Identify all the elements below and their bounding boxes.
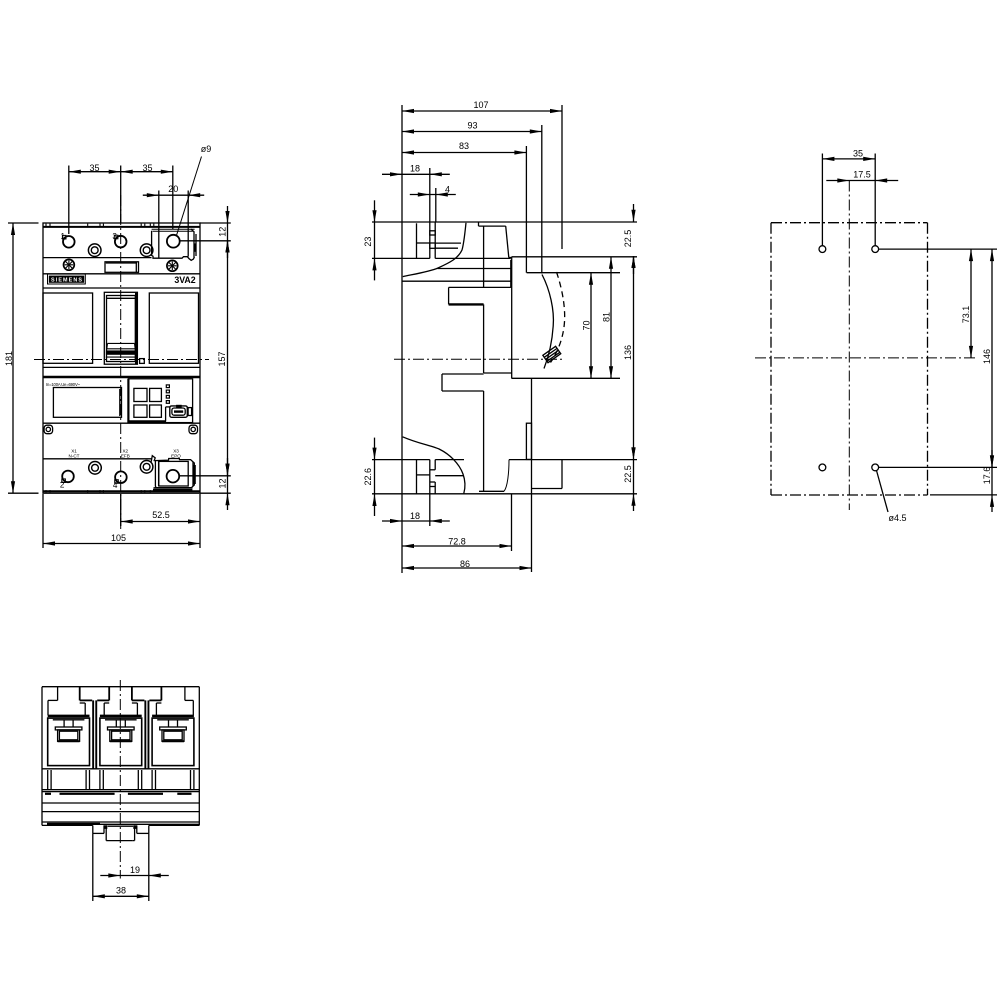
svg-text:81: 81	[602, 312, 612, 322]
svg-text:ø9: ø9	[201, 144, 212, 154]
svg-text:107: 107	[473, 100, 488, 110]
svg-text:35: 35	[89, 163, 99, 173]
svg-text:18: 18	[410, 164, 420, 174]
svg-text:ø4.5: ø4.5	[888, 513, 906, 523]
svg-text:86: 86	[460, 559, 470, 569]
svg-text:38: 38	[116, 886, 126, 896]
svg-text:19: 19	[130, 865, 140, 875]
svg-text:105: 105	[111, 533, 126, 543]
svg-text:EPO: EPO	[171, 453, 181, 458]
svg-text:52.5: 52.5	[152, 510, 170, 520]
svg-text:22.5: 22.5	[623, 465, 633, 483]
svg-text:In=100A Ue=690V~: In=100A Ue=690V~	[46, 382, 81, 387]
svg-text:20: 20	[168, 184, 178, 194]
svg-text:136: 136	[623, 345, 633, 360]
svg-text:73.1: 73.1	[961, 306, 971, 324]
svg-text:N-CT: N-CT	[69, 453, 80, 458]
svg-text:35: 35	[853, 148, 863, 158]
svg-text:EFB: EFB	[121, 453, 130, 458]
svg-text:83: 83	[459, 141, 469, 151]
svg-text:35: 35	[142, 163, 152, 173]
svg-text:23: 23	[363, 237, 373, 247]
svg-text:72.8: 72.8	[448, 537, 466, 547]
svg-text:17.5: 17.5	[853, 169, 871, 179]
svg-text:SIEMENS: SIEMENS	[51, 277, 82, 283]
svg-text:181: 181	[4, 351, 14, 366]
svg-text:1: 1	[61, 232, 66, 241]
svg-text:22.5: 22.5	[623, 230, 633, 248]
svg-text:12: 12	[218, 227, 228, 237]
svg-text:4: 4	[113, 481, 118, 490]
svg-text:4: 4	[445, 185, 450, 195]
svg-text:3VA2: 3VA2	[174, 275, 195, 285]
svg-text:157: 157	[217, 351, 227, 366]
svg-text:18: 18	[410, 511, 420, 521]
svg-text:146: 146	[982, 349, 992, 364]
svg-text:2: 2	[60, 480, 65, 489]
svg-text:3: 3	[112, 232, 117, 241]
svg-text:22.6: 22.6	[363, 468, 373, 486]
svg-text:93: 93	[467, 120, 477, 130]
svg-text:70: 70	[582, 320, 592, 330]
svg-text:12: 12	[218, 478, 228, 488]
svg-text:17.6: 17.6	[982, 467, 992, 485]
